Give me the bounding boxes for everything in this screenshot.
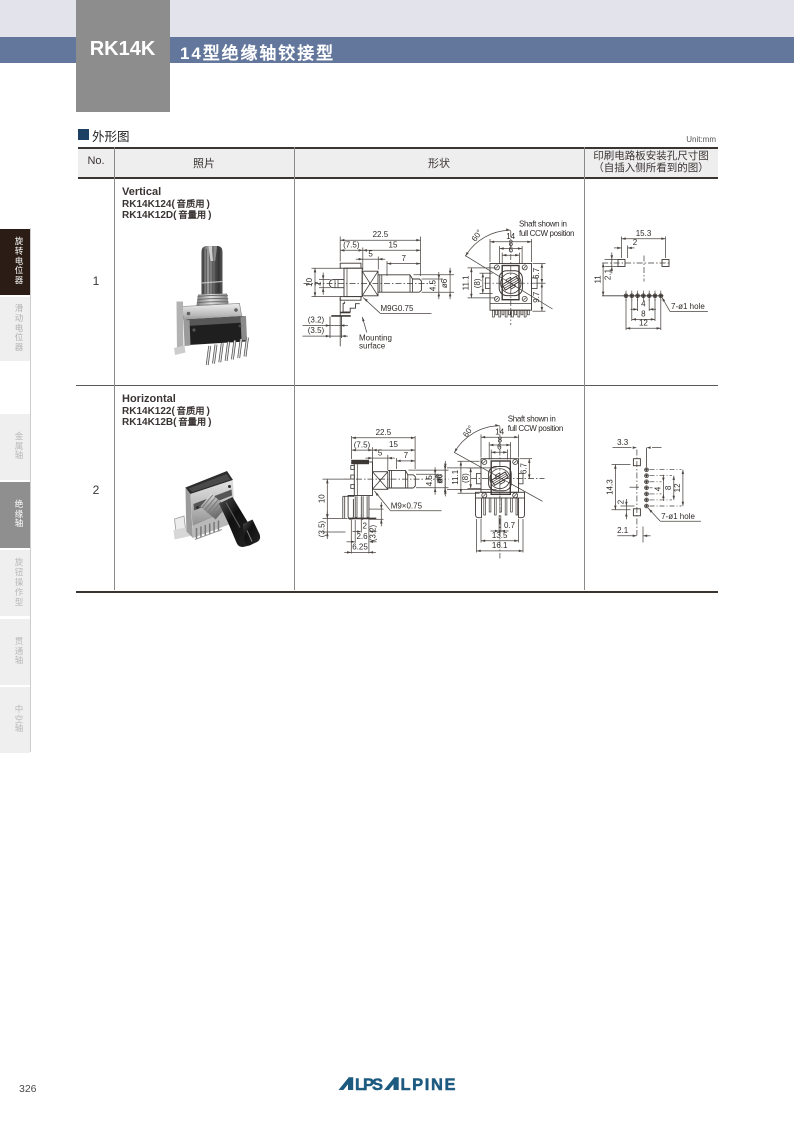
svg-text:LPS: LPS bbox=[355, 1076, 383, 1094]
svg-text:LPINE: LPINE bbox=[401, 1076, 456, 1094]
